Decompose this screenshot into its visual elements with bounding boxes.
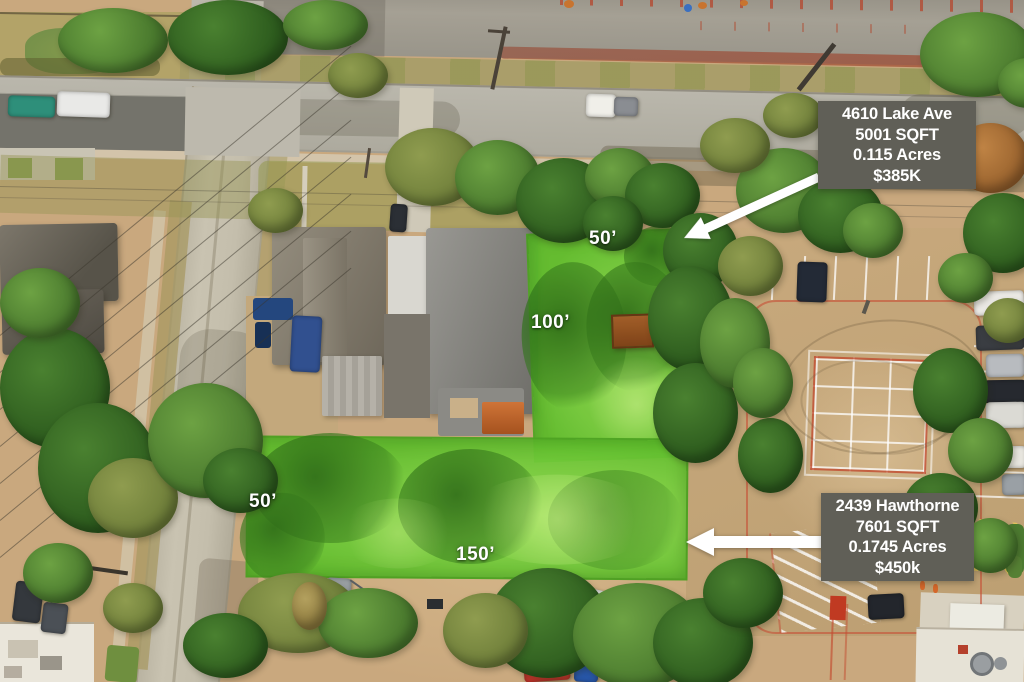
tree (938, 253, 993, 303)
grass-strip (104, 645, 139, 682)
tree (203, 448, 278, 513)
cone (920, 581, 925, 590)
paint-dot (698, 2, 707, 9)
tree (23, 543, 93, 603)
tree (103, 583, 163, 633)
car (586, 93, 617, 117)
tree (583, 196, 643, 251)
rooftop (950, 603, 1005, 631)
grass-highlight (338, 498, 458, 569)
car (290, 315, 323, 372)
tree (948, 418, 1013, 483)
tree (763, 93, 823, 138)
car (40, 602, 68, 635)
tree (318, 588, 418, 658)
lot-overlay-2439-hawthorne (246, 435, 689, 580)
tree (328, 53, 388, 98)
shed-roof-orange (482, 402, 524, 434)
paint-dot (564, 0, 574, 8)
roof-equip (8, 640, 38, 658)
metal-roof (322, 356, 382, 416)
tree (843, 203, 903, 258)
grass-highlight (463, 474, 654, 565)
dumpster (830, 596, 847, 621)
tree (703, 558, 783, 628)
roof-vent (994, 657, 1007, 670)
patio (450, 398, 478, 418)
intersection (184, 87, 300, 157)
dumpster (253, 298, 293, 320)
roof-equip (958, 645, 968, 654)
cone (933, 584, 938, 593)
tree (953, 123, 1024, 193)
car (8, 95, 56, 118)
tree (0, 268, 80, 338)
house-roof (384, 314, 430, 418)
no-parking-hatch (769, 523, 881, 633)
car (867, 593, 904, 620)
tree (168, 0, 288, 75)
roof-vent (970, 652, 994, 676)
car (796, 261, 827, 302)
house-roof (426, 228, 538, 414)
tree (283, 0, 368, 50)
tree (700, 118, 770, 173)
tree (58, 8, 168, 73)
cart (427, 599, 443, 609)
car (986, 354, 1024, 378)
car (614, 97, 639, 117)
handicap-mark (684, 4, 692, 12)
paint-dot (740, 0, 748, 6)
tree (248, 188, 303, 233)
tree (183, 613, 268, 678)
car (57, 91, 111, 118)
aerial-scene (0, 0, 1024, 682)
car (389, 203, 408, 232)
roof-equip (40, 656, 62, 670)
tree (718, 236, 783, 296)
tree (292, 582, 327, 630)
tree (963, 518, 1018, 573)
car (984, 380, 1024, 404)
tree (738, 418, 803, 493)
aerial-photo: 50’ 100’ 50’ 150’ 4610 Lake Ave 5001 SQF… (0, 0, 1024, 682)
tree (733, 348, 793, 418)
tree (443, 593, 528, 668)
car (1002, 474, 1024, 496)
roof-equip (4, 666, 22, 678)
rooftop (916, 627, 1024, 682)
